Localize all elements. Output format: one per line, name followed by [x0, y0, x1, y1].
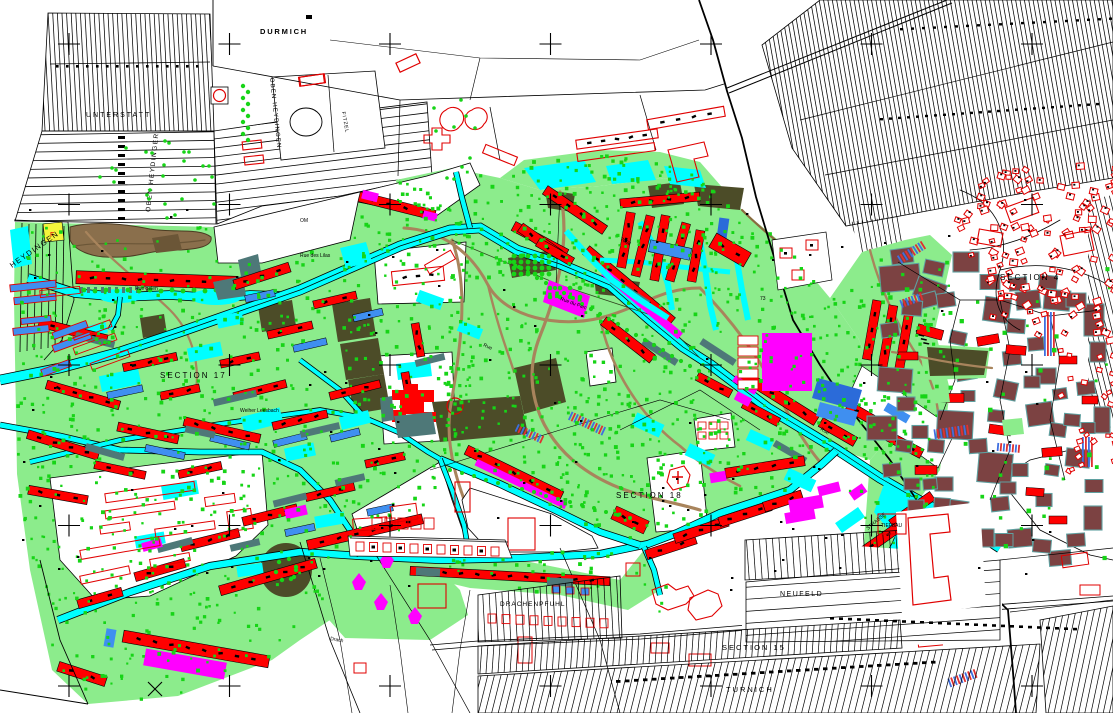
svg-text:Rue gelen: Rue gelen: [135, 286, 158, 292]
svg-text:SECTION 18: SECTION 18: [616, 491, 683, 500]
svg-text:TURNICH: TURNICH: [726, 685, 774, 694]
svg-text:SECTION 15: SECTION 15: [722, 643, 786, 652]
svg-text:DURMICH: DURMICH: [260, 27, 308, 36]
svg-text:TIEFBAU: TIEFBAU: [881, 523, 903, 529]
svg-text:NEUFELD: NEUFELD: [780, 591, 823, 598]
svg-text:UNTERSTATT: UNTERSTATT: [86, 112, 151, 119]
svg-text:Weiher Leesbach: Weiher Leesbach: [240, 408, 279, 414]
svg-text:SECTION 4: SECTION 4: [1000, 273, 1060, 282]
svg-text:DRACHENPFUHL: DRACHENPFUHL: [500, 601, 565, 608]
svg-text:SECTION 17: SECTION 17: [160, 371, 227, 380]
svg-text:Rue des Lilas: Rue des Lilas: [300, 253, 331, 259]
svg-text:OM: OM: [300, 218, 308, 224]
svg-text:73: 73: [760, 296, 766, 302]
